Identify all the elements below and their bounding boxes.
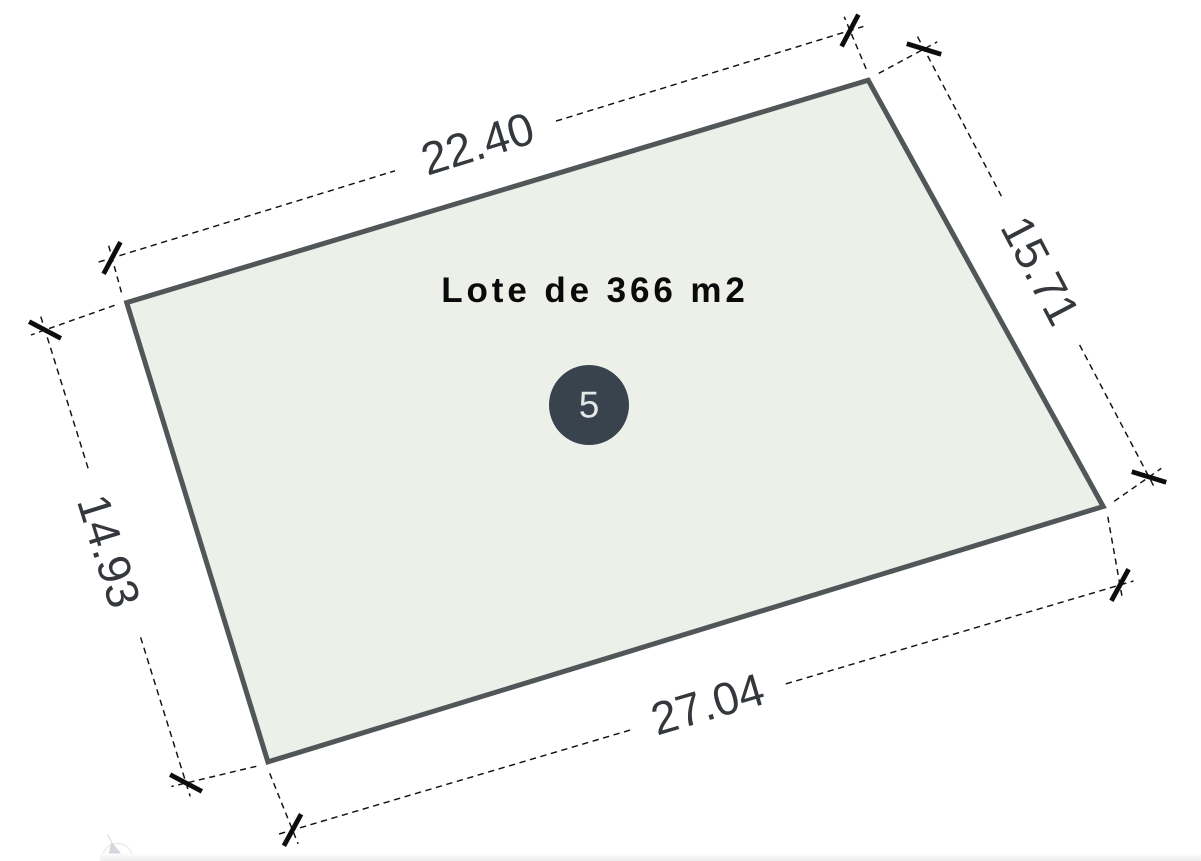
svg-text:Lote de 366 m2: Lote de 366 m2 <box>441 271 748 310</box>
svg-text:15.71: 15.71 <box>991 207 1091 333</box>
svg-text:14.93: 14.93 <box>67 488 151 613</box>
svg-text:5: 5 <box>579 385 600 426</box>
svg-text:22.40: 22.40 <box>415 102 540 186</box>
svg-text:27.04: 27.04 <box>645 663 770 746</box>
